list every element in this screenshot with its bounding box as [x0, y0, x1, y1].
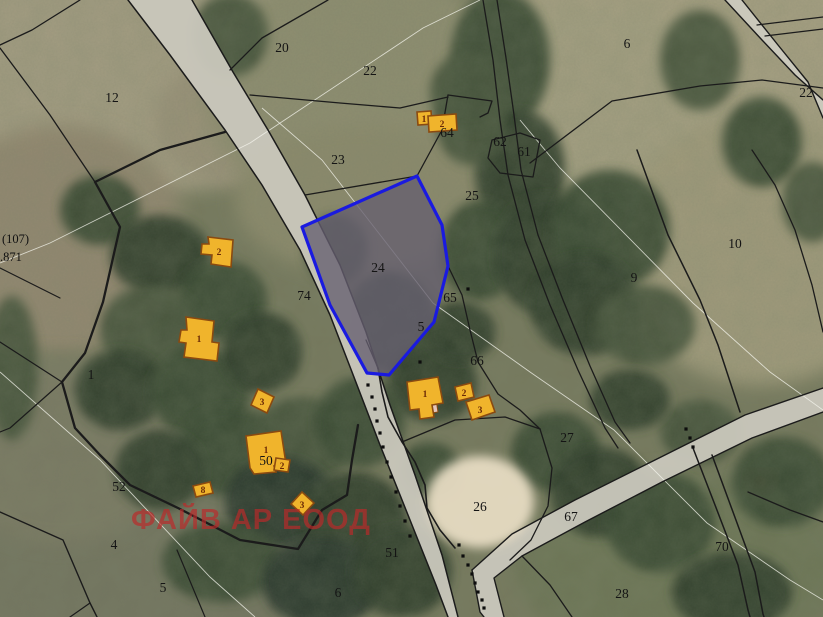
survey-point	[466, 287, 469, 290]
building-number: 3	[478, 406, 483, 416]
survey-point	[373, 407, 376, 410]
survey-point	[473, 581, 476, 584]
building-number: 2	[462, 389, 467, 399]
building-number: 8	[201, 486, 206, 496]
building-number: 1	[422, 115, 427, 125]
parcel-number: 10	[728, 236, 742, 251]
survey-point	[389, 475, 392, 478]
survey-point	[476, 590, 479, 593]
survey-point	[684, 427, 687, 430]
survey-point	[408, 534, 411, 537]
parcel-number: 51	[385, 545, 399, 560]
survey-point	[378, 431, 381, 434]
parcel-number: 5	[418, 319, 425, 334]
building-number: 3	[260, 398, 265, 408]
survey-point	[385, 460, 388, 463]
building-number: 2	[217, 248, 222, 258]
survey-point	[482, 606, 485, 609]
survey-point	[457, 543, 460, 546]
parcel-number: 4	[111, 537, 118, 552]
survey-point	[688, 436, 691, 439]
survey-point	[691, 445, 694, 448]
survey-point	[381, 445, 384, 448]
survey-point	[403, 519, 406, 522]
parcel-number: 20	[275, 40, 289, 55]
parcel-number: 22	[363, 63, 377, 78]
edge-annotation: (107)	[2, 232, 29, 246]
survey-point	[470, 572, 473, 575]
parcel-number: 12	[105, 90, 119, 105]
edge-annotation: .871	[0, 250, 22, 264]
survey-point	[480, 598, 483, 601]
building-number: 1	[423, 390, 428, 400]
parcel-number: 27	[560, 430, 574, 445]
parcel-number: 66	[470, 353, 484, 368]
parcel-number: 6	[335, 585, 342, 600]
parcel-number: 61	[517, 144, 531, 159]
parcel-number: 23	[331, 152, 345, 167]
parcel-number: 25	[465, 188, 479, 203]
survey-point	[418, 360, 421, 363]
parcel-number: 64	[440, 125, 454, 140]
parcel-number: 6	[624, 36, 631, 51]
parcel-number: 74	[297, 288, 311, 303]
parcel-number: 52	[112, 479, 126, 494]
cadastral-map[interactable]: 122131283123 202261223256261642210974655…	[0, 0, 823, 617]
building-number: 1	[197, 335, 202, 345]
parcel-number: 62	[493, 134, 507, 149]
watermark-text: ФАЙВ АР ЕООД	[131, 502, 371, 536]
survey-point	[461, 554, 464, 557]
parcel-number: 50	[259, 453, 273, 468]
survey-point	[466, 563, 469, 566]
survey-point	[370, 395, 373, 398]
survey-point	[394, 490, 397, 493]
parcel-number: 9	[631, 270, 638, 285]
survey-point	[366, 383, 369, 386]
parcel-number: 22	[799, 85, 813, 100]
parcel-number: 1	[88, 367, 95, 382]
building-number: 2	[280, 462, 285, 472]
parcel-number: 65	[443, 290, 457, 305]
cadastral-map-viewport[interactable]: 122131283123 202261223256261642210974655…	[0, 0, 823, 617]
survey-point	[398, 504, 401, 507]
survey-point	[375, 419, 378, 422]
highlighted-parcel-number: 24	[371, 260, 385, 275]
parcel-number: 5	[160, 580, 167, 595]
parcel-number: 67	[564, 509, 578, 524]
parcel-number: 26	[473, 499, 487, 514]
parcel-number: 28	[615, 586, 629, 601]
parcel-number: 70	[715, 539, 729, 554]
